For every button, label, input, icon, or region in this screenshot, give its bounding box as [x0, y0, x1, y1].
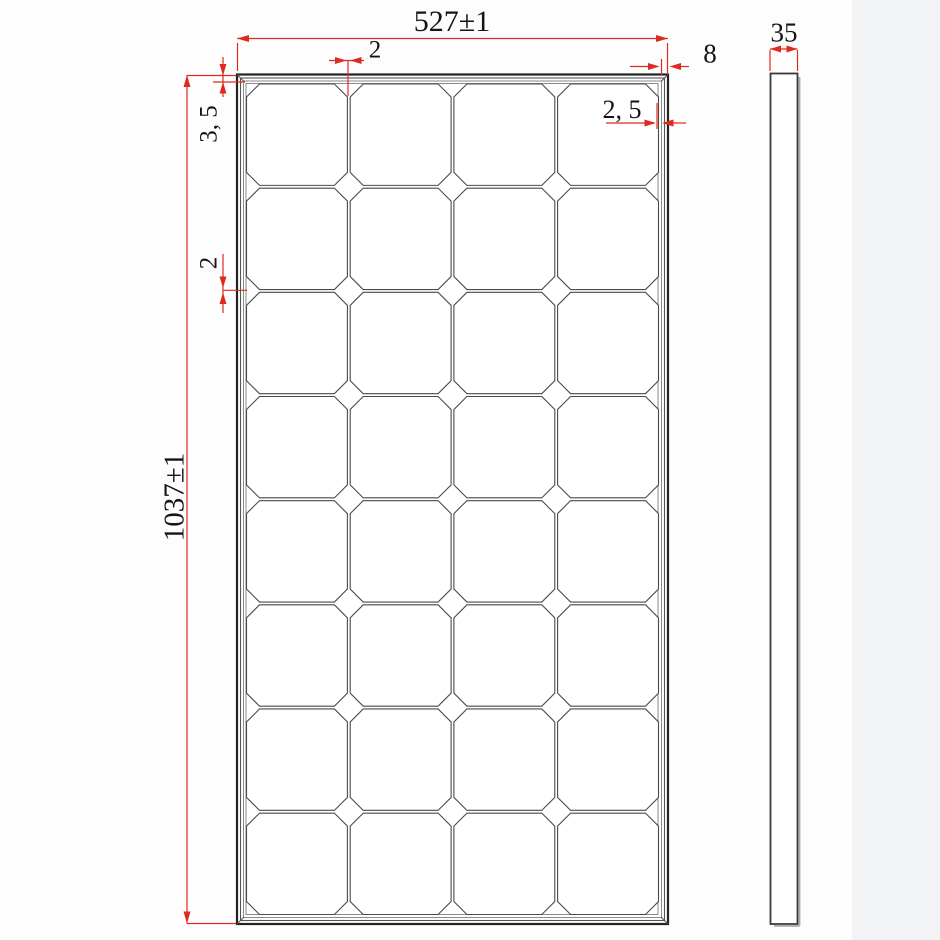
solar-cell — [247, 188, 348, 289]
solar-cell — [558, 501, 659, 602]
solar-cell — [558, 813, 659, 914]
dim-thickness-35 — [770, 46, 798, 72]
solar-cell — [454, 84, 555, 185]
technical-drawing-page: 527±1 1037±1 35 8 2 2 2, 5 3, 5 — [0, 0, 940, 940]
solar-cell — [247, 813, 348, 914]
solar-cell — [454, 396, 555, 497]
solar-cell — [350, 292, 451, 393]
dim-frame-width-8 — [630, 59, 689, 75]
dim-width-527 — [237, 35, 668, 73]
solar-cell — [247, 605, 348, 706]
dim-label-frame-top-margin: 3, 5 — [197, 105, 222, 143]
solar-cell — [558, 188, 659, 289]
solar-cell — [350, 813, 451, 914]
solar-cell — [350, 605, 451, 706]
solar-cell — [454, 605, 555, 706]
solar-cell — [350, 188, 451, 289]
solar-cell — [454, 188, 555, 289]
side-view — [771, 74, 800, 926]
solar-cell — [247, 501, 348, 602]
solar-cell — [454, 813, 555, 914]
front-view — [237, 75, 668, 925]
dim-label-cell-gap-top: 2 — [369, 38, 382, 63]
solar-cell — [558, 396, 659, 497]
dim-height-1037 — [184, 75, 237, 924]
solar-cell — [558, 292, 659, 393]
side-profile — [771, 74, 798, 925]
dim-label-cell-edge-gap: 2, 5 — [603, 97, 642, 123]
drawing-svg — [0, 0, 940, 940]
solar-cell — [350, 501, 451, 602]
solar-cell — [558, 605, 659, 706]
solar-cell — [247, 709, 348, 810]
solar-cell — [247, 84, 348, 185]
solar-cell — [454, 292, 555, 393]
dim-label-height: 1037±1 — [161, 453, 190, 541]
solar-cell — [350, 396, 451, 497]
solar-cell — [350, 84, 451, 185]
dim-label-width: 527±1 — [414, 7, 490, 37]
dim-label-frame-width: 8 — [703, 41, 717, 68]
dim-label-thickness: 35 — [771, 20, 798, 47]
dim-label-cell-gap-side: 2 — [197, 257, 222, 270]
solar-cell — [454, 709, 555, 810]
solar-cell — [350, 709, 451, 810]
solar-cell — [247, 292, 348, 393]
solar-cell — [558, 709, 659, 810]
solar-cell — [247, 396, 348, 497]
solar-cell — [454, 501, 555, 602]
